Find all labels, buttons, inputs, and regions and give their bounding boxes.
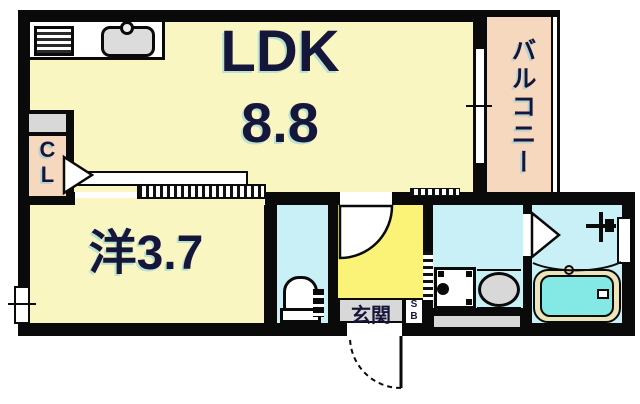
bathtub-faucet — [597, 289, 609, 299]
left-window — [14, 286, 30, 324]
entrance-door-arc — [350, 337, 401, 388]
shoe-box-letter-s: S — [404, 299, 424, 310]
closet-letter-c: C — [29, 137, 66, 163]
wall-washroom-bath-lower — [523, 256, 532, 336]
wall-washroom-bath-upper — [523, 205, 532, 214]
washing-machine-corner-tl — [438, 271, 444, 277]
balcony-rail-inner — [551, 17, 553, 195]
washroom-counter-strip — [434, 316, 520, 327]
balcony-label: バルコニー — [496, 22, 540, 192]
ldk-size-label: 8.8 — [175, 92, 385, 154]
bathtub-overflow — [564, 265, 574, 275]
washing-machine-corner-br — [466, 299, 472, 305]
balcony-wall-top — [487, 10, 560, 17]
hall-top-sliding-door — [410, 188, 460, 196]
mid-wall-center — [265, 192, 340, 205]
ldk-room-label: LDK — [175, 20, 385, 84]
toilet-controls — [313, 289, 324, 317]
sliding-door-panel-b — [137, 184, 266, 199]
washing-machine-corner-tr — [466, 271, 472, 277]
ldk-balcony-window — [474, 47, 486, 165]
floor-plan: LDK 8.8 洋3.7 バルコニー 玄関 S B C L — [0, 0, 640, 404]
washbasin-icon — [478, 272, 520, 307]
closet-letter-l: L — [29, 162, 66, 188]
closet-shelf — [29, 114, 66, 132]
western-room-label: 洋3.7 — [32, 228, 260, 281]
wall-toilet-hall — [328, 205, 338, 323]
outer-wall-bottom — [18, 323, 635, 336]
washing-machine-drain — [437, 283, 449, 295]
wall-western-toilet — [264, 205, 277, 323]
bath-window — [617, 217, 632, 264]
outer-wall-right-bottom — [622, 192, 635, 336]
balcony-rail-outer — [557, 17, 560, 195]
shoe-box-letter-b: B — [404, 311, 424, 322]
faucet-icon — [120, 21, 134, 35]
entrance-label: 玄関 — [340, 299, 402, 328]
washroom-sliding-door — [423, 252, 433, 300]
stove-icon — [34, 26, 74, 56]
